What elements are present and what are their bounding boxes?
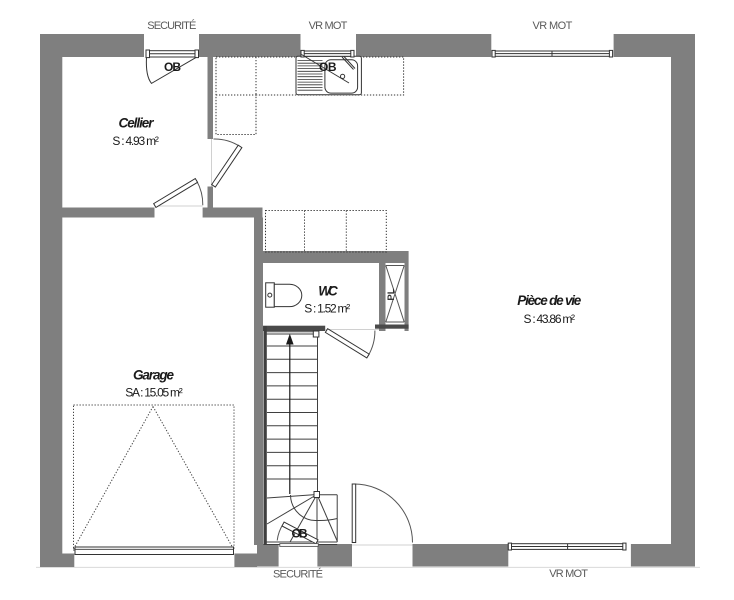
svg-text:S : 4.93 m²: S : 4.93 m² bbox=[112, 134, 159, 148]
svg-text:Pièce de vie: Pièce de vie bbox=[517, 293, 581, 308]
svg-text:S : 1.52 m²: S : 1.52 m² bbox=[304, 302, 350, 316]
svg-text:SECURITÉ: SECURITÉ bbox=[273, 567, 323, 580]
svg-text:Cellier: Cellier bbox=[119, 116, 155, 131]
svg-text:WC: WC bbox=[318, 283, 338, 298]
svg-text:VR MOT: VR MOT bbox=[549, 568, 588, 580]
svg-text:VR MOT: VR MOT bbox=[309, 20, 348, 32]
svg-text:SA : 15.05 m²: SA : 15.05 m² bbox=[125, 386, 183, 400]
svg-text:SECURITÉ: SECURITÉ bbox=[147, 19, 196, 32]
svg-text:OB: OB bbox=[319, 60, 337, 74]
svg-text:VR MOT: VR MOT bbox=[533, 20, 573, 32]
svg-text:OB: OB bbox=[292, 526, 308, 540]
svg-text:S : 43.86 m²: S : 43.86 m² bbox=[524, 312, 576, 326]
svg-text:OB: OB bbox=[164, 60, 181, 74]
svg-text:PL: PL bbox=[386, 288, 397, 300]
svg-text:Garage: Garage bbox=[133, 368, 174, 383]
